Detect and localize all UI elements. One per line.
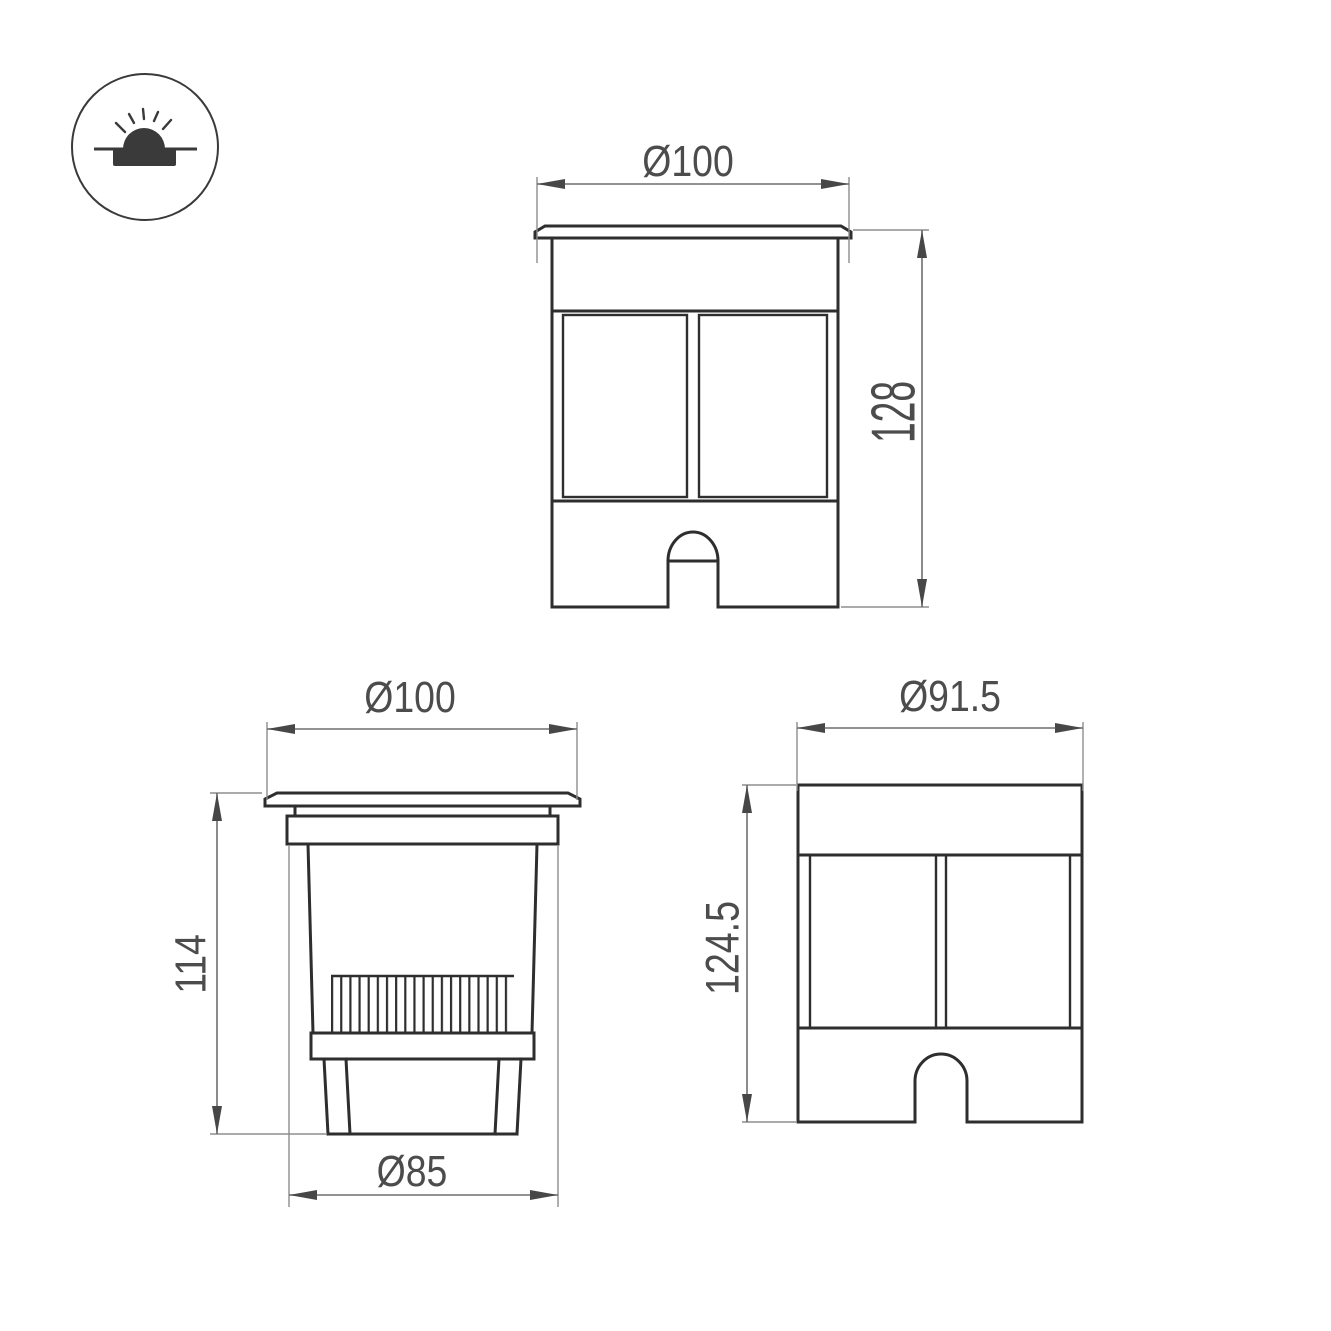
front-flange	[535, 226, 851, 238]
side-top-width-dimension-label: Ø100	[364, 672, 455, 722]
side-heatsink-fins	[331, 976, 514, 1033]
body-height-dimension-label: 124.5	[696, 901, 749, 995]
side-flange	[265, 793, 580, 806]
drawing-sheet: Ø100 128	[0, 0, 1331, 1331]
body-width-dimension-label: Ø91.5	[899, 671, 1001, 721]
sheet-background	[0, 0, 1331, 1331]
technical-drawing: Ø100 128	[0, 0, 1331, 1331]
side-bottom-width-dimension-label: Ø85	[377, 1146, 448, 1196]
side-collar-ring	[287, 816, 558, 844]
front-height-dimension-label: 128	[859, 381, 928, 443]
front-width-dimension-label: Ø100	[642, 136, 733, 186]
side-led-plate	[311, 1033, 534, 1059]
side-height-dimension-label: 114	[166, 934, 216, 994]
icon-recessed-housing	[113, 149, 176, 166]
